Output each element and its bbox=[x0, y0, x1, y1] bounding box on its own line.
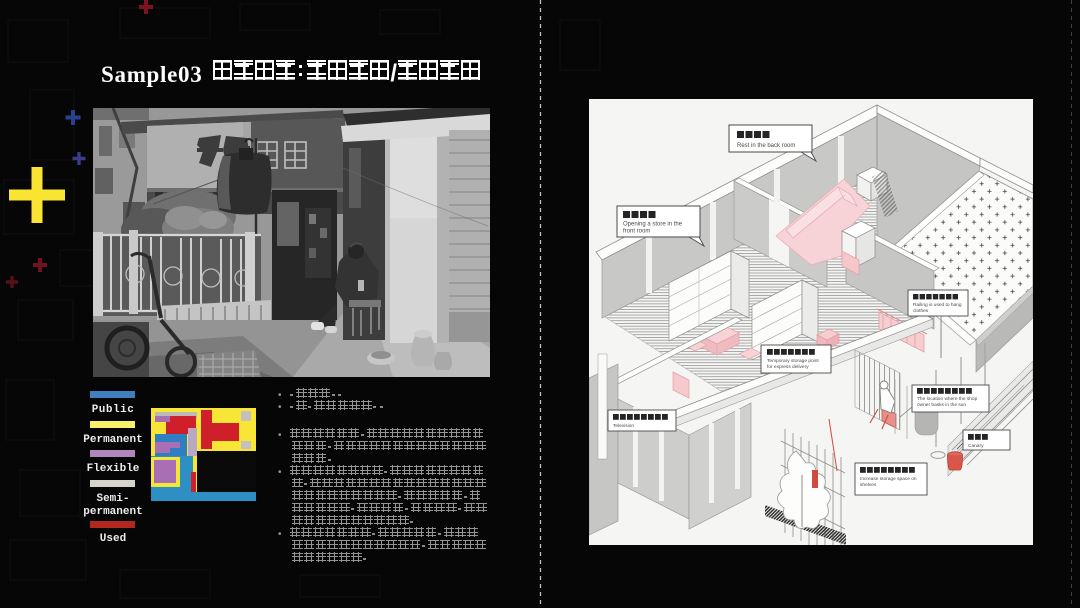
svg-text:Canary: Canary bbox=[968, 443, 984, 449]
svg-text:clothes: clothes bbox=[913, 308, 929, 314]
svg-text:Opening a store in the: Opening a store in the bbox=[623, 222, 683, 228]
svg-text:for express delivery: for express delivery bbox=[767, 364, 809, 370]
svg-text:Railing is used to hang: Railing is used to hang bbox=[913, 302, 962, 308]
svg-text:Television: Television bbox=[613, 423, 634, 429]
svg-text:front room: front room bbox=[623, 229, 650, 235]
svg-text:Rest in the back room: Rest in the back room bbox=[737, 143, 795, 149]
svg-text:owner basks in the sun: owner basks in the sun bbox=[917, 402, 966, 408]
svg-text:The location where the shop: The location where the shop bbox=[917, 396, 978, 402]
svg-text:shelves: shelves bbox=[860, 482, 877, 488]
svg-text:Increase storage space on: Increase storage space on bbox=[860, 476, 917, 482]
svg-text:Temporary storage point: Temporary storage point bbox=[767, 358, 819, 364]
